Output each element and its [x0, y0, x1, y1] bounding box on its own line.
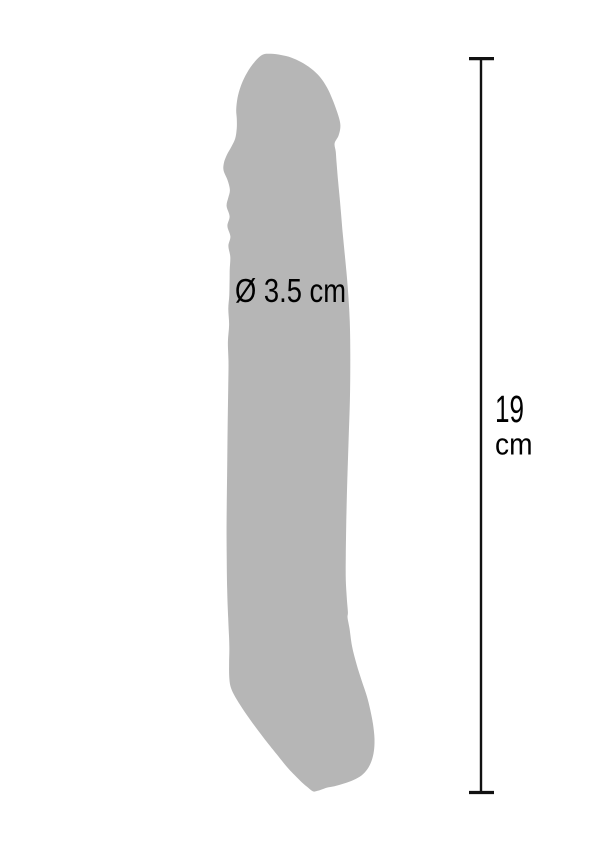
svg-text:Ø 3.5 cm: Ø 3.5 cm: [235, 272, 346, 309]
svg-text:cm: cm: [495, 427, 533, 462]
svg-text:19: 19: [495, 389, 524, 431]
